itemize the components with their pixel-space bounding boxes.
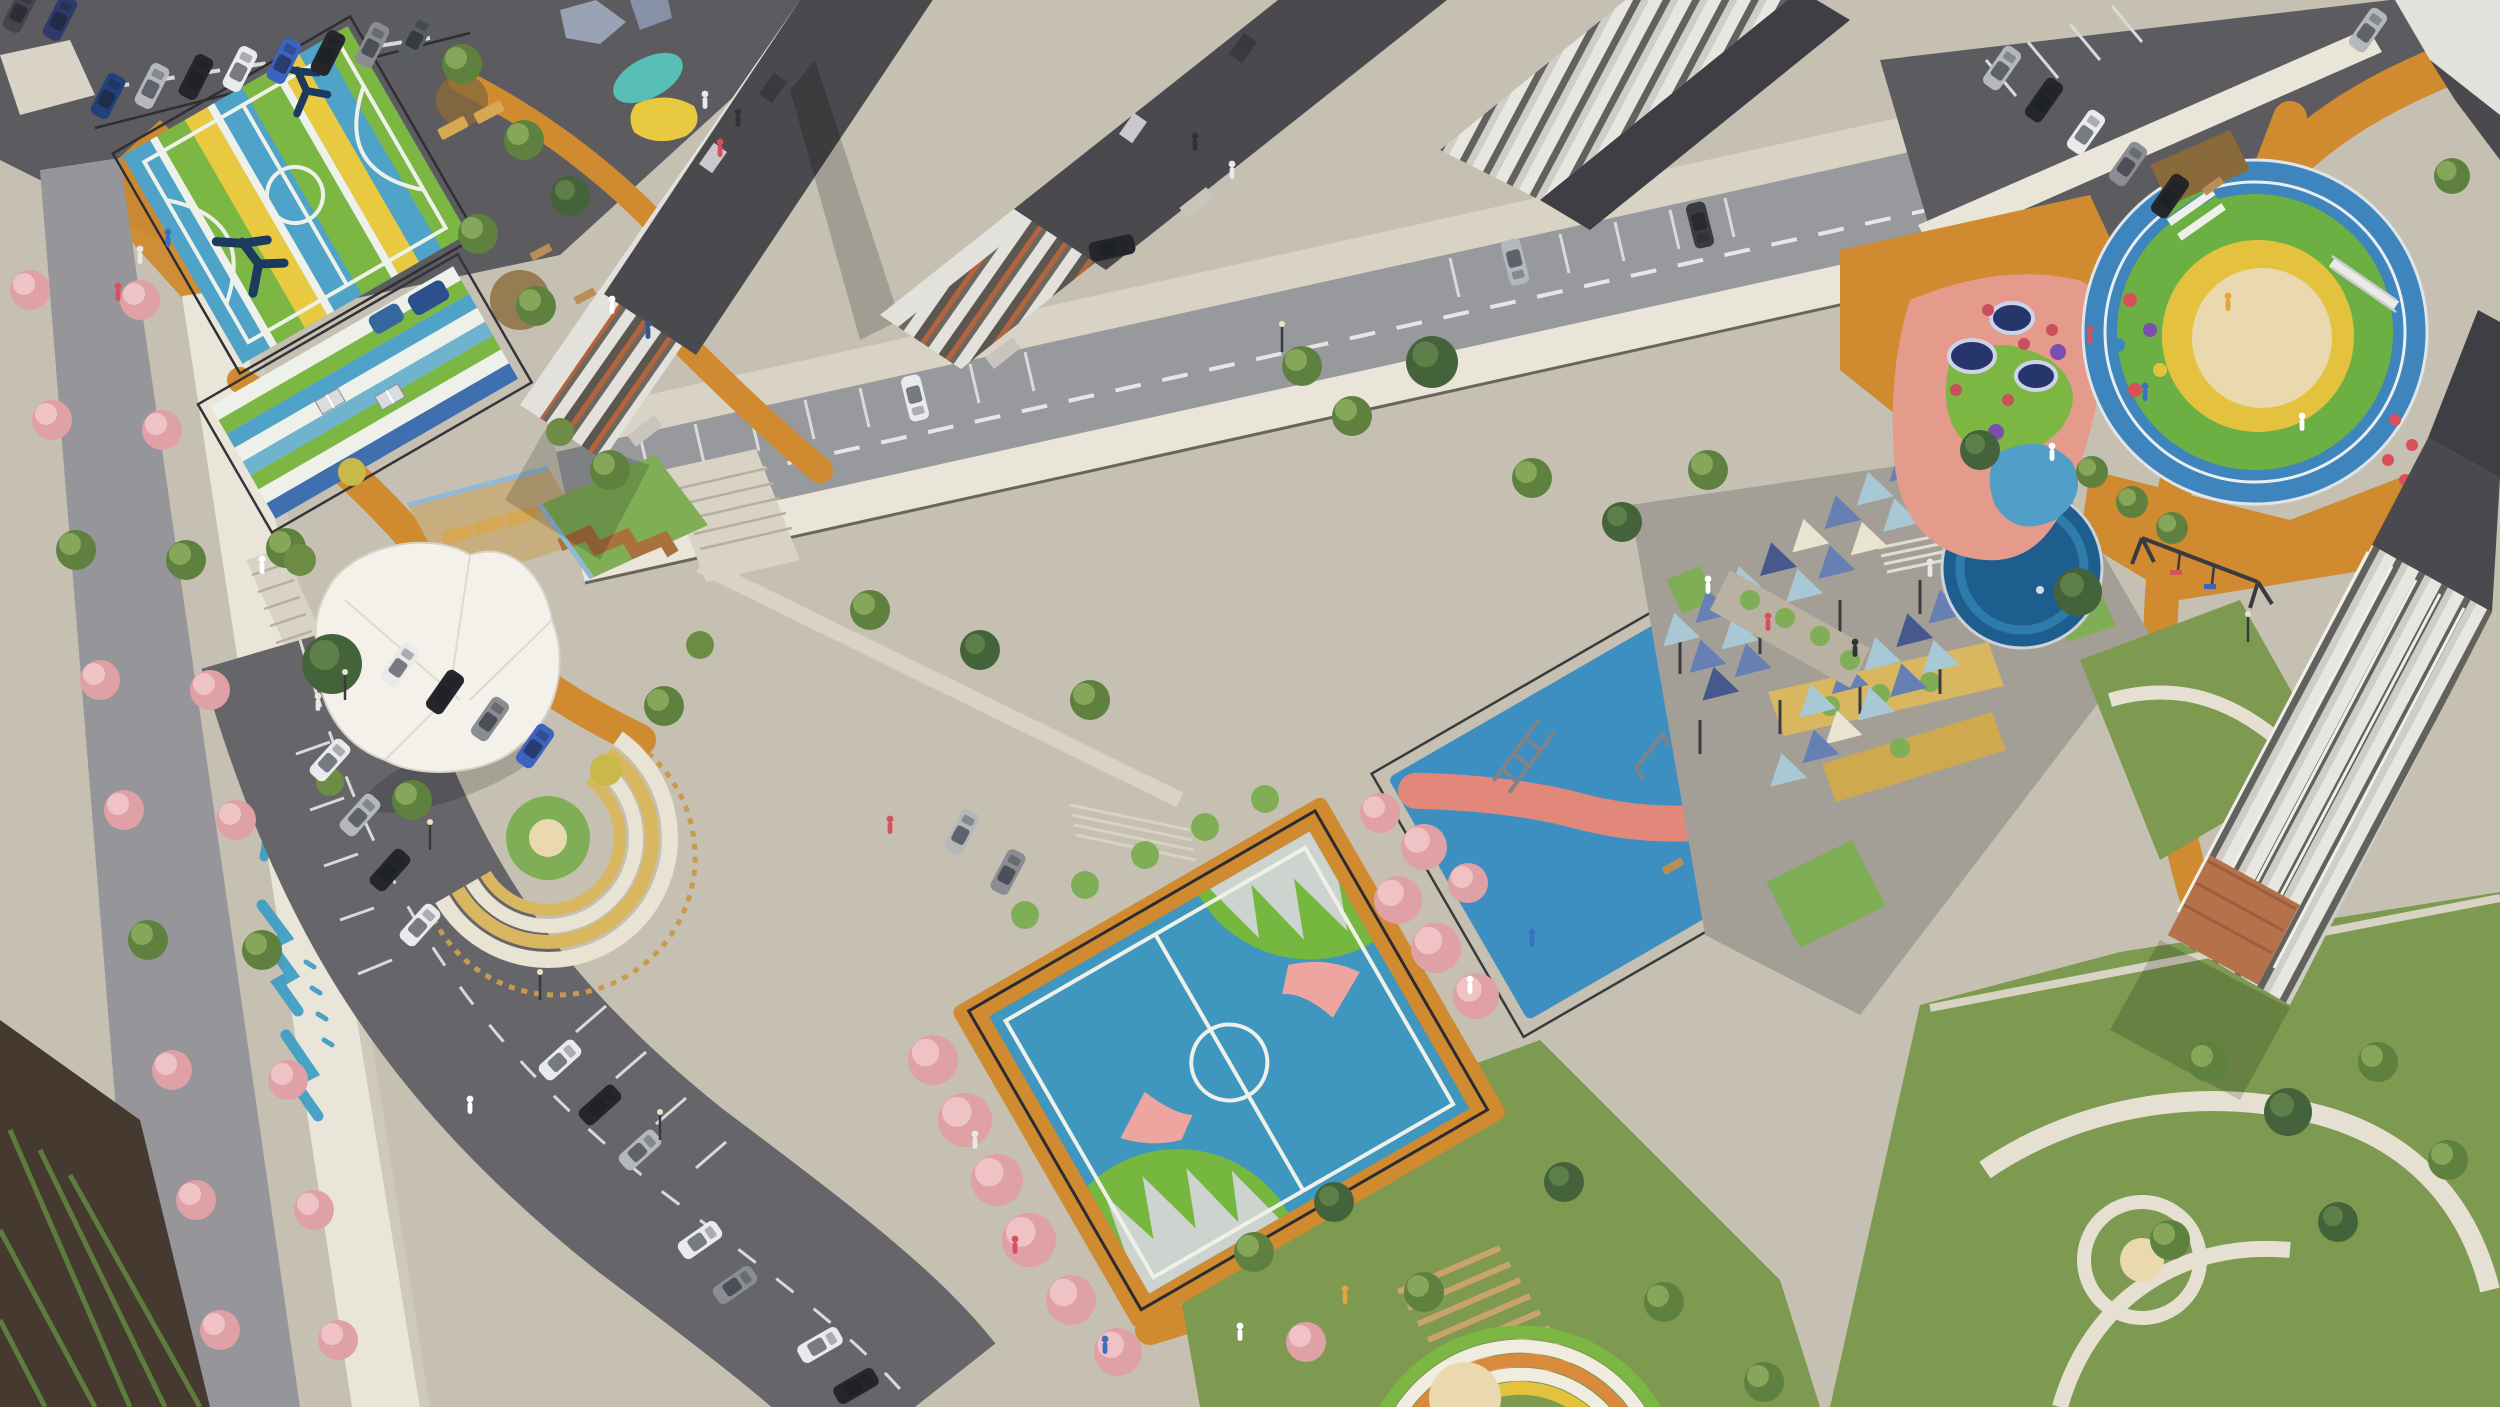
tree-icon: [32, 400, 72, 440]
tree-icon: [1070, 680, 1110, 720]
tree-icon: [2156, 512, 2188, 544]
tree-icon: [1512, 458, 1552, 498]
aerial-render: [0, 0, 2500, 1407]
tree-icon: [1094, 1328, 1142, 1376]
tree-icon: [2188, 1042, 2228, 1082]
tree-icon: [442, 44, 482, 84]
tree-icon: [2318, 1202, 2358, 1242]
person: [645, 321, 652, 339]
tree-icon: [1282, 346, 1322, 386]
person: [702, 91, 709, 109]
tree-icon: [200, 1310, 240, 1350]
person: [1765, 613, 1772, 631]
tree-icon: [1374, 876, 1422, 924]
tree-icon: [1744, 1362, 1784, 1402]
person: [467, 1096, 474, 1114]
tree-icon: [2054, 568, 2102, 616]
person: [2087, 326, 2094, 344]
tree-icon: [1544, 1162, 1584, 1202]
tree-icon: [1453, 973, 1499, 1019]
tree-icon: [1960, 430, 2000, 470]
person: [315, 693, 322, 711]
tree-icon: [590, 450, 630, 490]
tree-icon: [1332, 396, 1372, 436]
tree-icon: [80, 660, 120, 700]
tree-icon: [1046, 1275, 1096, 1325]
person: [1467, 976, 1474, 994]
tree-icon: [318, 1320, 358, 1360]
person: [887, 816, 894, 834]
tree-icon: [1401, 824, 1447, 870]
tree-icon: [971, 1154, 1023, 1206]
tree-icon: [56, 530, 96, 570]
person: [137, 246, 144, 264]
tree-icon: [458, 214, 498, 254]
person: [165, 229, 172, 247]
tree-icon: [1448, 863, 1488, 903]
tree-icon: [302, 634, 362, 694]
tree-icon: [176, 1180, 216, 1220]
tree-icon: [644, 686, 684, 726]
tree-icon: [2150, 1220, 2190, 1260]
person: [2299, 413, 2306, 431]
person: [2049, 443, 2056, 461]
tree-icon: [1360, 793, 1400, 833]
person: [1237, 1323, 1244, 1341]
tree-icon: [166, 540, 206, 580]
person: [1852, 639, 1859, 657]
tree-icon: [1411, 923, 1461, 973]
person: [2225, 293, 2232, 311]
tree-icon: [1644, 1282, 1684, 1322]
tree-icon: [10, 270, 50, 310]
person: [1102, 1336, 1109, 1354]
tree-icon: [1406, 336, 1458, 388]
person: [1927, 559, 1934, 577]
person: [1192, 133, 1199, 151]
tree-icon: [2358, 1042, 2398, 1082]
tree-icon: [2434, 158, 2470, 194]
rubber-patch: [630, 97, 697, 141]
tree-icon: [152, 1050, 192, 1090]
tree-icon: [960, 630, 1000, 670]
tree-icon: [294, 1190, 334, 1230]
person: [717, 139, 724, 157]
tree-icon: [128, 920, 168, 960]
person: [972, 1131, 979, 1149]
tree-icon: [392, 780, 432, 820]
tree-icon: [1002, 1213, 1056, 1267]
tree-icon: [1688, 450, 1728, 490]
person: [1342, 1286, 1349, 1304]
tree-icon: [216, 800, 256, 840]
tree-icon: [2076, 456, 2108, 488]
tree-icon: [104, 790, 144, 830]
tree-icon: [142, 410, 182, 450]
tree-icon: [120, 280, 160, 320]
tree-icon: [2428, 1140, 2468, 1180]
tree-icon: [1286, 1322, 1326, 1362]
person: [1529, 929, 1536, 947]
tree-icon: [1314, 1182, 1354, 1222]
tree-icon: [1234, 1232, 1274, 1272]
tree-icon: [1404, 1272, 1444, 1312]
person: [115, 283, 122, 301]
tree-icon: [908, 1035, 958, 1085]
tree-icon: [516, 286, 556, 326]
tree-icon: [850, 590, 890, 630]
person: [1705, 576, 1712, 594]
tree-icon: [2264, 1088, 2312, 1136]
person: [2142, 383, 2149, 401]
tree-icon: [938, 1093, 992, 1147]
tree-icon: [190, 670, 230, 710]
tree-icon: [242, 930, 282, 970]
tree-icon: [550, 176, 590, 216]
person: [1012, 1236, 1019, 1254]
person: [259, 556, 266, 574]
tree-icon: [1602, 502, 1642, 542]
render-stage: [0, 0, 2500, 1407]
tree-icon: [268, 1060, 308, 1100]
tree-icon: [2116, 486, 2148, 518]
person: [735, 109, 742, 127]
person: [609, 296, 616, 314]
tree-icon: [504, 120, 544, 160]
person: [1229, 161, 1236, 179]
